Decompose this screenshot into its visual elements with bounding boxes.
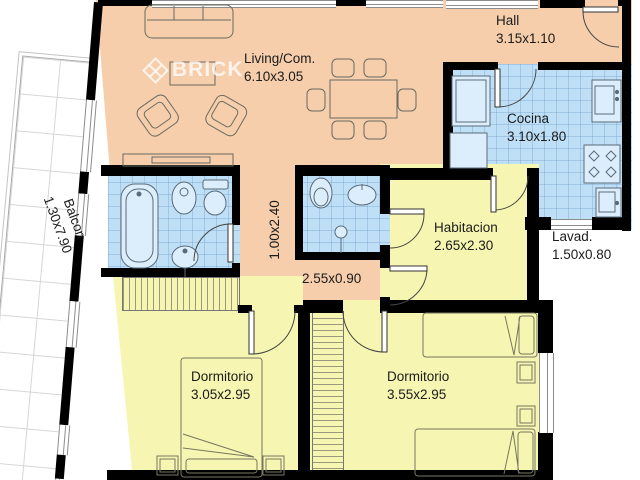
armchair [134, 92, 181, 139]
kitchen-counter [450, 133, 487, 168]
toilet-2 [310, 178, 332, 208]
entry-door-arc [583, 11, 619, 47]
furniture-layer [0, 0, 640, 480]
dining-chair [398, 89, 416, 111]
bedroom1-door-arc [252, 311, 295, 354]
single-bed [415, 429, 535, 476]
armchair [203, 93, 249, 139]
label-lavadero: Lavad. 1.50x0.80 [552, 228, 611, 264]
bathroom-door-arc [194, 224, 231, 261]
dining-chair [364, 59, 386, 77]
bathroom-fixtures [121, 178, 376, 277]
pillow [186, 459, 257, 473]
dining-chair [307, 89, 325, 111]
stove [584, 145, 620, 183]
pillow [519, 316, 534, 354]
door-leaf[interactable] [390, 266, 427, 271]
kitchen-fixtures [450, 76, 621, 217]
label-hall: Hall 3.15x1.10 [496, 12, 555, 48]
label-dormitorio2: Dormitorio 3.55x2.95 [387, 368, 449, 404]
label-corridor-horizontal: 2.55x0.90 [302, 270, 361, 288]
label-dormitorio1: Dormitorio 3.05x2.95 [191, 368, 253, 404]
bidet [172, 182, 196, 214]
habitacion-kitchen-door-arc [494, 176, 528, 210]
brick-watermark: BRICK [146, 58, 244, 82]
tv-cabinet [123, 154, 233, 166]
door-leaf[interactable] [228, 224, 233, 262]
label-cocina: Cocina 3.10x1.80 [507, 110, 566, 146]
door-leaf[interactable] [249, 311, 254, 354]
dining-chair [364, 121, 386, 139]
bed-fold [505, 316, 520, 355]
pillow [518, 432, 533, 473]
door-leaf[interactable] [495, 69, 500, 107]
dining-chair [332, 59, 354, 77]
kitchen-door-arc [498, 69, 536, 107]
dining-table [330, 80, 397, 118]
sofa [145, 5, 233, 38]
floor-plan: Living/Com. 6.10x3.05 Hall 3.15x1.10 Coc… [0, 0, 640, 480]
toilet-tank [203, 180, 228, 189]
door-leaf[interactable] [382, 311, 387, 352]
fridge [452, 76, 490, 126]
door-leaf[interactable] [491, 176, 496, 212]
toilet [204, 191, 226, 215]
label-corridor-vertical: 1.00x2.40 [266, 185, 284, 275]
label-habitacion: Habitacion 2.65x2.30 [434, 219, 498, 255]
habitacion-corridor-door-arc [390, 268, 427, 305]
bed-fold [504, 431, 519, 474]
brick-watermark-text: BRICK [172, 58, 244, 82]
dining-chair [332, 121, 354, 139]
bed-fold [183, 434, 254, 457]
shower-drain [335, 226, 347, 238]
brick-logo-icon [142, 57, 169, 84]
label-living: Living/Com. 6.10x3.05 [244, 50, 315, 86]
door-leaf[interactable] [390, 209, 424, 214]
habitacion-bath-door-arc [390, 214, 424, 248]
entry-door-leaf[interactable] [583, 7, 618, 12]
bedroom2-door-arc [343, 311, 384, 352]
